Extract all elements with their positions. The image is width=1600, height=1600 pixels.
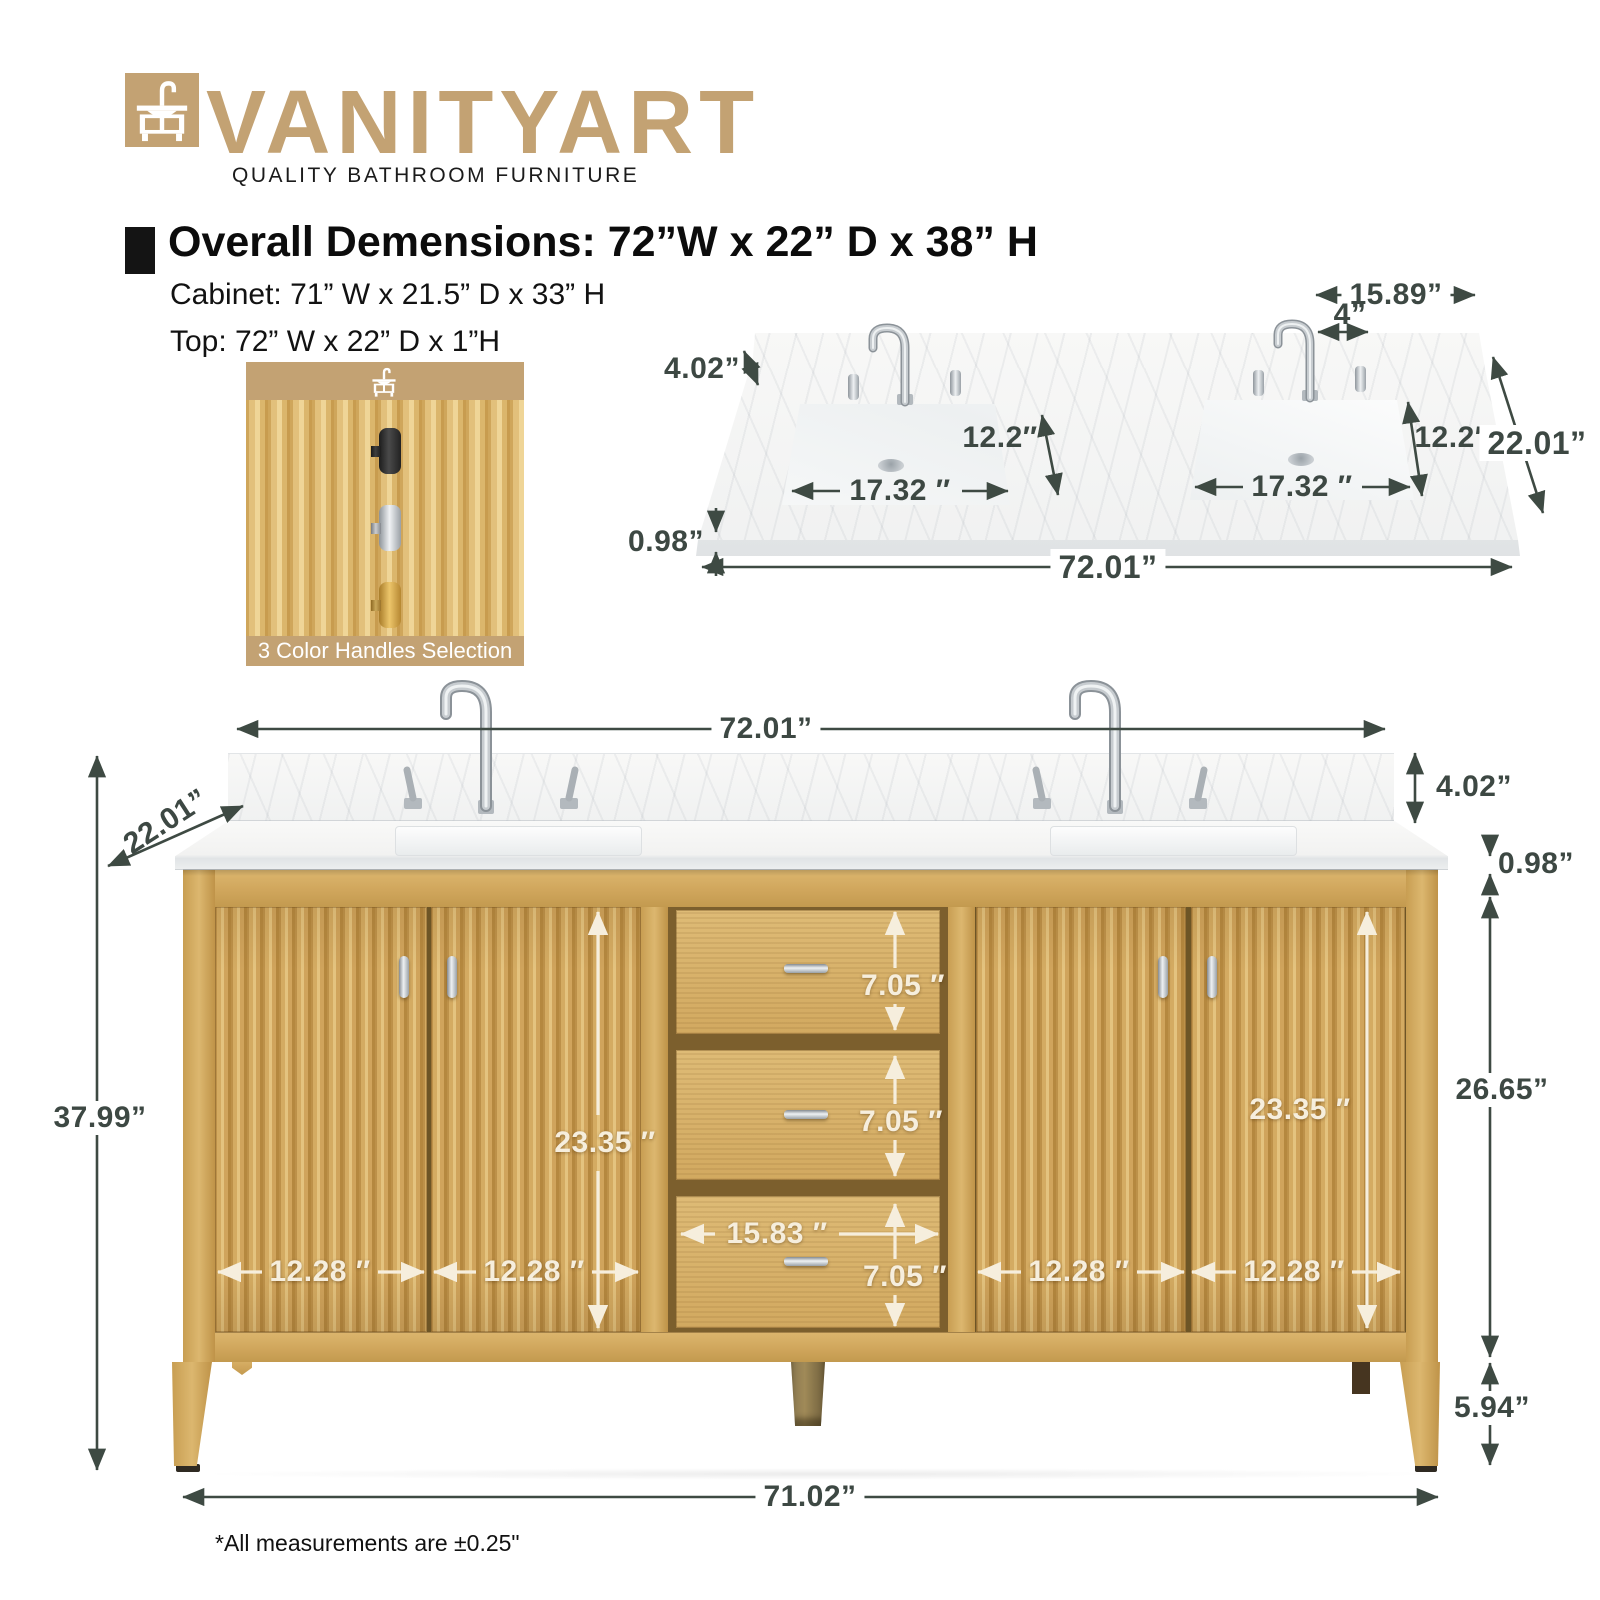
faucet-fixtures-layer [0,0,1600,1600]
drawer-3-handle [784,1257,828,1266]
dim-door-2-width: 12.28 ″ [483,1257,584,1287]
dim-door-4-width: 12.28 ″ [1243,1257,1344,1287]
dim-left-sink-width: 17.32 ″ [849,476,950,506]
dim-front-backsplash-height: 4.02” [1436,772,1512,802]
dim-door-3-width: 12.28 ″ [1028,1257,1129,1287]
front-left-faucet-icon [404,686,578,814]
dim-right-door-height: 23.35 ″ [1249,1095,1350,1125]
dim-drawer-2-height: 7.05 ″ [859,1107,943,1137]
door-3-handle [1158,956,1168,998]
dim-door-1-width: 12.28 ″ [269,1257,370,1287]
dim-right-sink-depth: 12.2″ [1414,423,1489,453]
dim-cabinet-base-width: 71.02” [755,1480,864,1514]
dim-leg-height: 5.94” [1446,1391,1538,1425]
dim-front-countertop-thickness: 0.98” [1498,849,1574,879]
dim-faucet-spread: 4” [1334,300,1367,330]
dim-drawer-1-height: 7.05 ″ [861,971,945,1001]
spec-sheet-page: VANITYART QUALITY BATHROOM FURNITURE Ove… [0,0,1600,1600]
dim-drawer-3-height: 7.05 ″ [863,1262,947,1292]
dim-cabinet-body-height: 26.65” [1447,1073,1556,1107]
door-2-handle [447,956,457,998]
drawer-2-handle [784,1110,828,1119]
dim-countertop-depth: 22.01” [1479,425,1594,461]
dim-front-countertop-width: 72.01” [711,712,820,746]
top-view-left-faucet-icon [848,328,961,405]
dim-overall-height: 37.99” [45,1101,154,1135]
dim-left-door-height: 23.35 ″ [554,1128,655,1158]
dim-top-countertop-thickness: 0.98” [628,527,704,557]
door-4-handle [1207,956,1217,998]
dim-top-backsplash-height: 4.02” [664,354,740,384]
top-view-right-faucet-icon [1253,324,1366,401]
front-right-faucet-icon [1033,686,1207,814]
dim-countertop-width: 72.01” [1050,549,1165,585]
dim-drawer-width: 15.83 ″ [726,1219,827,1249]
door-1-handle [399,956,409,998]
drawer-1-handle [784,964,828,973]
dim-left-sink-depth: 12.2″ [962,423,1037,453]
dim-right-sink-width: 17.32 ″ [1251,472,1352,502]
